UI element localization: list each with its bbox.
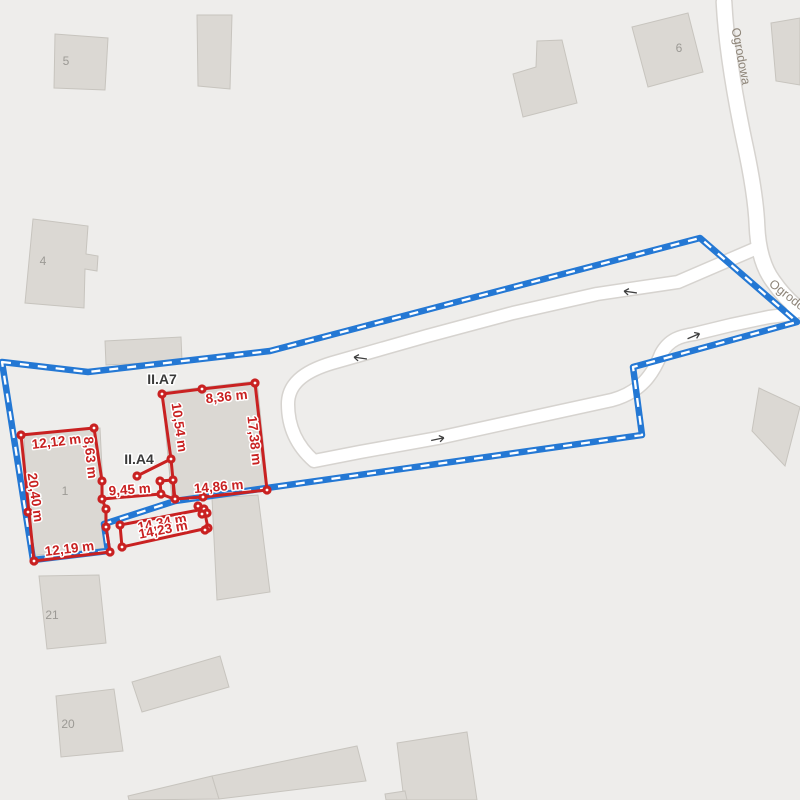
building bbox=[771, 18, 800, 85]
vertex-dot-center bbox=[172, 479, 175, 482]
vertex-dot-center bbox=[170, 458, 173, 461]
vertex-dot-center bbox=[101, 498, 104, 501]
vertex-dot-center bbox=[93, 427, 96, 430]
map-background bbox=[0, 0, 800, 800]
vertex-dot-center bbox=[266, 489, 269, 492]
vertex-dot-center bbox=[20, 434, 23, 437]
vertex-dot-center bbox=[202, 496, 205, 499]
map-layer: 56412120OgrodowaOgrodowa12,12 m8,63 m20,… bbox=[0, 0, 800, 800]
vertex-dot-center bbox=[105, 526, 108, 529]
vertex-dot-center bbox=[136, 475, 139, 478]
vertex-dot-center bbox=[174, 498, 177, 501]
building-number-label: 4 bbox=[40, 254, 47, 268]
vertex-dot-center bbox=[27, 511, 30, 514]
vertex-dot-center bbox=[160, 493, 163, 496]
building-number-label: 21 bbox=[45, 608, 59, 622]
vertex-dot-center bbox=[159, 480, 162, 483]
building-number-label: 1 bbox=[62, 484, 69, 498]
vertex-dot-center bbox=[201, 388, 204, 391]
vertex-dot-center bbox=[201, 513, 204, 516]
building bbox=[397, 732, 477, 800]
vertex-dot-center bbox=[105, 508, 108, 511]
vertex-dot-center bbox=[119, 524, 122, 527]
building bbox=[197, 15, 232, 89]
vertex-dot-center bbox=[197, 505, 200, 508]
vertex-dot-center bbox=[109, 551, 112, 554]
vertex-dot-center bbox=[161, 393, 164, 396]
measurement-label: 9,45 m bbox=[108, 481, 151, 499]
vertex-dot-center bbox=[33, 560, 36, 563]
building-number-label: 5 bbox=[63, 54, 70, 68]
vertex-dot-center bbox=[121, 546, 124, 549]
building-number-label: 6 bbox=[676, 41, 683, 55]
vertex-dot-center bbox=[254, 382, 257, 385]
area-label: II.A7 bbox=[147, 371, 177, 387]
building-number-label: 20 bbox=[61, 717, 75, 731]
vertex-dot-center bbox=[204, 529, 207, 532]
vertex-dot-center bbox=[101, 480, 104, 483]
map-canvas[interactable]: 56412120OgrodowaOgrodowa12,12 m8,63 m20,… bbox=[0, 0, 800, 800]
area-label: II.A4 bbox=[124, 451, 154, 467]
